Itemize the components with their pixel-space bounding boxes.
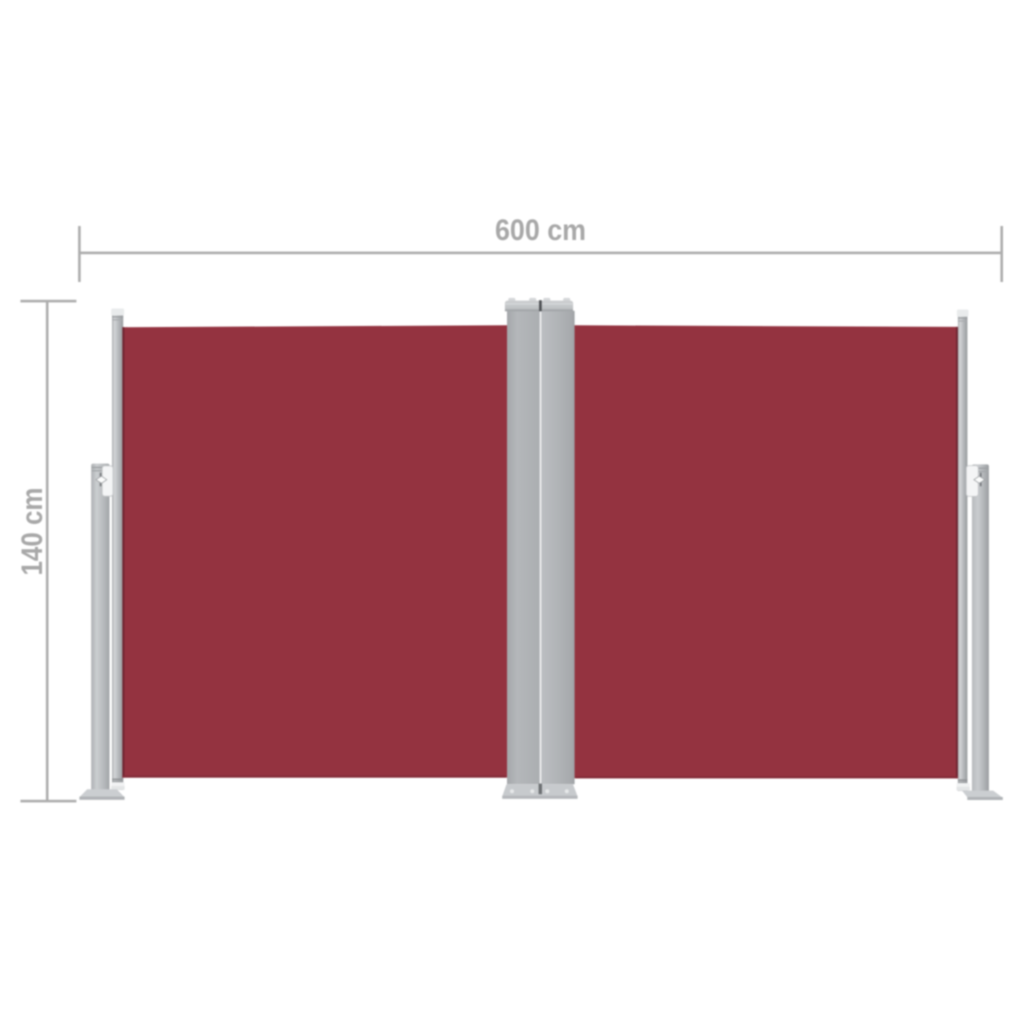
svg-text:140 cm: 140 cm <box>16 488 49 576</box>
svg-text:600 cm: 600 cm <box>495 214 586 247</box>
